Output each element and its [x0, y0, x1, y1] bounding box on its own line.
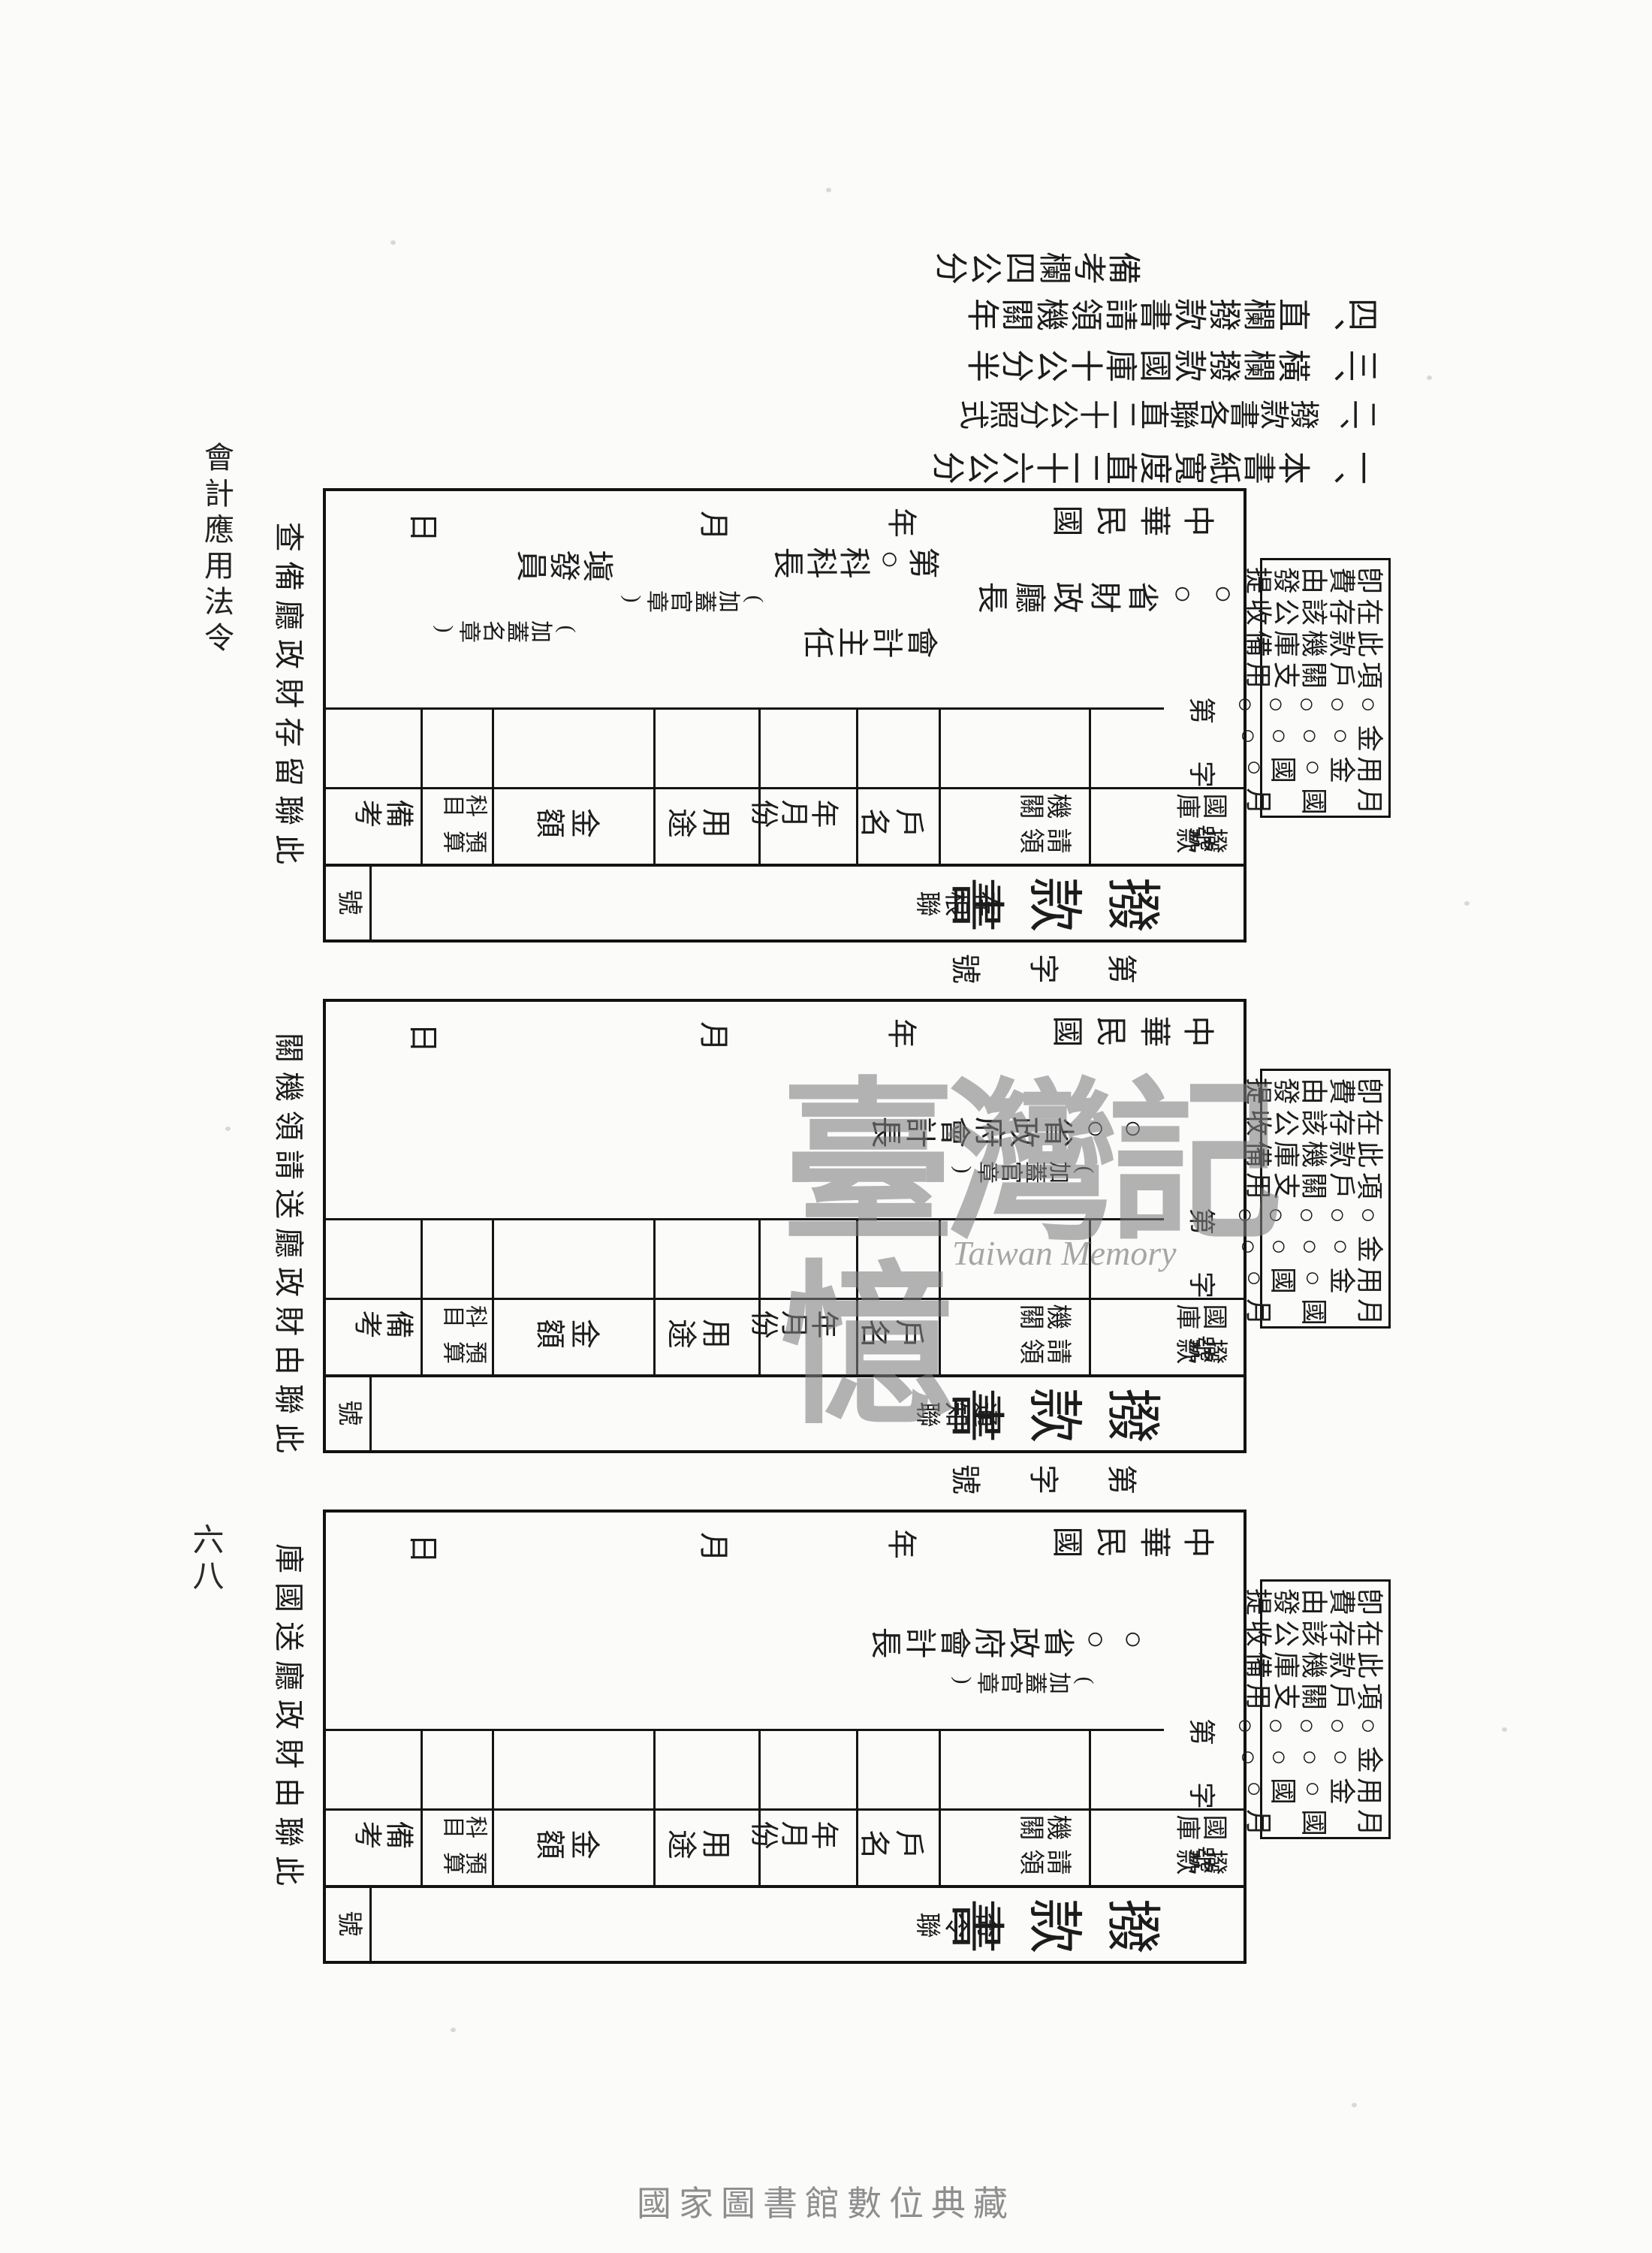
form-1-grid-col [939, 707, 941, 787]
form-1-rule-label-top [323, 787, 1247, 789]
instruction-item-4-cont: 備考欄四公分 [934, 248, 1141, 281]
form-2-label-kemu: 科目 [443, 1302, 488, 1325]
form-3-number-cell [369, 1885, 372, 1961]
form-1-signer-chief_seal: (加蓋官章) [619, 587, 767, 610]
form-1-serial-column: 第 字 號 [1188, 697, 1215, 867]
form-2-date-era: 中華民國 [1041, 1012, 1215, 1044]
form-1-date-day: 日 [409, 509, 439, 539]
form-1-note-line-5: ○○○○○ [1230, 691, 1384, 718]
form-2-date-year: 年 [888, 1015, 918, 1045]
form-1-label-cell [421, 787, 423, 864]
instruction-item-1: 一、本書紙寬度直二十六公分 [931, 448, 1380, 481]
form-1-note-line-2: 在存該公收 [1245, 596, 1384, 623]
form-3-label-nianyuefen: 年月份 [749, 1817, 840, 1846]
form-3-label-cell [1089, 1808, 1091, 1885]
form-3-grid-col [939, 1729, 941, 1808]
form-1-rule-grid-top [323, 707, 1164, 710]
form-2-rule-grid-top [323, 1218, 1164, 1220]
form-3-serial-column: 第 字 號 [1188, 1718, 1215, 1888]
form-3-grid-col [856, 1729, 858, 1808]
form-3-number-label: 號 [338, 1908, 363, 1933]
form-2-grid-col [653, 1218, 656, 1298]
form-3-note-line-1: 卽費由發提 [1245, 1586, 1384, 1613]
form-3-grid-col [1089, 1729, 1091, 1808]
form-1-note-line-7: 用金○國○ [1239, 754, 1384, 781]
form-1-grid-col [492, 707, 494, 787]
form-2-label-yusuan: 預算 [443, 1338, 488, 1361]
form-2-note-line-2: 在存該公收 [1245, 1107, 1384, 1134]
form-2-caption: 關機領請送廳政財由聯此 [273, 1033, 303, 1462]
form-2-label-cell [653, 1298, 656, 1374]
form-1-label-beikao: 備考 [351, 796, 415, 825]
form-2-label-cell [939, 1298, 941, 1374]
scan-speckle [451, 2028, 456, 2032]
form-1-rule-label-bottom [323, 864, 1247, 867]
form-1-label-yusuan: 預算 [443, 828, 488, 850]
form-2-note-line-8: 月 國 月 [1245, 1296, 1384, 1323]
form-2-note-line-6: 金○○○○ [1233, 1233, 1384, 1260]
form-3-signer-chief2_seal: (加蓋官章) [949, 1669, 1098, 1691]
form-2-date-day: 日 [409, 1020, 439, 1050]
form-3-date-month: 月 [700, 1529, 730, 1559]
form-1-signer-officer_a: 第○科科長 [772, 544, 940, 575]
form-1-signer-chief: ○○省財政廳長 [972, 578, 1241, 610]
form-3-date-era: 中華民國 [1041, 1523, 1215, 1555]
form-2-date-month: 月 [700, 1018, 730, 1048]
form-3-label-jine: 金額 [532, 1826, 601, 1856]
form-2-label-huming: 戶名 [856, 1316, 925, 1346]
form-1-note-line-4: 項戶關支用 [1245, 659, 1384, 686]
form-2-label-cell [492, 1298, 494, 1374]
form-3-grid-col [492, 1729, 494, 1808]
form-3-caption: 庫國送廳政財由聯此 [273, 1543, 303, 1895]
form-3-note-line-6: 金○○○○ [1233, 1744, 1384, 1771]
instruction-item-3: 三、橫欄撥款國庫十公分半 [966, 345, 1380, 379]
form-2-number-label: 號 [338, 1397, 363, 1422]
form-1-caption: 查備廳政財存留聯此 [273, 522, 303, 873]
form-2-number-cell [369, 1374, 372, 1450]
form-1-signer-name_seal: (加蓋名章) [431, 617, 580, 640]
form-3-label-huming: 戶名 [856, 1826, 925, 1856]
form-2-label-qingling: 請領 [1018, 1335, 1072, 1361]
form-1-number-cell [369, 864, 372, 940]
form-3-signer-chief2: ○○省政府會計長 [868, 1624, 1150, 1655]
library-footer-caption: 國家圖書館數位典藏 [0, 2176, 1652, 2226]
form-2-signer-chief2_seal: (加蓋官章) [949, 1158, 1098, 1181]
form-2-label-yongtu: 用途 [663, 1316, 732, 1346]
scan-speckle [390, 240, 396, 245]
form-1-grid-col [421, 707, 423, 787]
form-2-rule-label-top [323, 1298, 1247, 1300]
margin-book-title: 會計應用法令 [201, 442, 231, 658]
form-2-note-line-3: 此款機庫備 [1245, 1139, 1384, 1166]
form-3-note-line-4: 項戶關支用 [1245, 1681, 1384, 1708]
form-1-label-yongtu: 用途 [663, 805, 732, 835]
form-1-label-cell [492, 787, 494, 864]
page-number: 六八 [189, 1523, 221, 1595]
form-3-label-qingling: 請領 [1018, 1846, 1072, 1871]
form-2-label-cell [1089, 1298, 1091, 1374]
form-3-note-line-2: 在存該公收 [1245, 1618, 1384, 1645]
form-3-label-jiguan: 機關 [1018, 1811, 1072, 1837]
form-1-label-nianyuefen: 年月份 [749, 796, 840, 825]
form-2-grid-col [421, 1218, 423, 1298]
form-2-note-line-4: 項戶關支用 [1245, 1170, 1384, 1197]
instruction-item-4: 四、直欄撥款書請領機關年 [966, 294, 1380, 327]
form-3-date-year: 年 [888, 1526, 918, 1556]
form-3-note-line-8: 月 國 月 [1245, 1807, 1384, 1834]
form-1-date-year: 年 [888, 505, 918, 535]
form-1-note-line-3: 此款機庫備 [1245, 628, 1384, 655]
form-2-label-cell [421, 1298, 423, 1374]
scan-speckle [1427, 375, 1432, 380]
form-1-grid-col [758, 707, 761, 787]
form-1-label-huming: 戶名 [856, 805, 925, 835]
form-1-label-jine: 金額 [532, 805, 601, 835]
form-1-note-line-6: 金○○○○ [1233, 722, 1384, 749]
form-2-grid-col [758, 1218, 761, 1298]
form-2-label-beikao: 備考 [351, 1307, 415, 1335]
scan-speckle [826, 188, 831, 192]
form-3-label-yongtu: 用途 [663, 1826, 732, 1856]
form-2-serial-column: 第 字 號 [1188, 1208, 1215, 1377]
form-2-label-jiguan: 機關 [1018, 1301, 1072, 1326]
form-1-grid-col [653, 707, 656, 787]
form-2-copy-label: 通知聯 [913, 1398, 999, 1424]
instruction-item-2: 二、撥款書各聯直二十公分照式 [960, 397, 1380, 427]
form-2-grid-col [856, 1218, 858, 1298]
form-3-rule-label-bottom [323, 1885, 1247, 1888]
form-1-label-cell [653, 787, 656, 864]
scan-speckle [1502, 1727, 1507, 1732]
form-1-label-cell [939, 787, 941, 864]
form-3-rule-grid-top [323, 1729, 1164, 1731]
form-2-note-line-7: 用金○國○ [1239, 1265, 1384, 1292]
form-3-label-beikao: 備考 [351, 1817, 415, 1846]
taiwan-memory-watermark-en: Taiwan Memory [952, 1233, 1177, 1273]
form-3-rule-label-top [323, 1808, 1247, 1811]
form-1-signer-officer_b: 塡發員 [515, 547, 614, 578]
form-1-label-kemu: 科目 [443, 792, 488, 814]
form-3-label-cell [939, 1808, 941, 1885]
form-1-signer-accountant: 會計主任 [800, 623, 939, 655]
form-1-date-month: 月 [700, 508, 730, 538]
form-3-grid-col [758, 1729, 761, 1808]
form-1-grid-col [856, 707, 858, 787]
form-1-number-label: 號 [338, 886, 363, 912]
serial-between-form1-form2: 第 字 號 [942, 951, 1138, 981]
form-2-grid-col [939, 1218, 941, 1298]
form-1-label-qingling: 請領 [1018, 825, 1072, 850]
form-3-note-line-7: 用金○國○ [1239, 1775, 1384, 1802]
form-3-label-kemu: 科目 [443, 1813, 488, 1835]
form-2-rule-label-bottom [323, 1374, 1247, 1377]
scanned-document-page: 會計應用法令 六八 臺灣記憶 Taiwan Memory 國家圖書館數位典藏 備… [0, 0, 1652, 2253]
form-1-note-line-8: 月 國 月 [1245, 786, 1384, 813]
scan-speckle [225, 1126, 231, 1131]
form-1-copy-label: 存根聯 [913, 888, 999, 913]
form-3-note-line-5: ○○○○○ [1230, 1712, 1384, 1739]
form-3-label-yusuan: 預算 [443, 1849, 488, 1871]
form-3-label-cell [653, 1808, 656, 1885]
form-2-label-nianyuefen: 年月份 [749, 1307, 840, 1335]
form-2-grid-col [492, 1218, 494, 1298]
form-3-copy-label: 命令聯 [913, 1909, 999, 1935]
form-3-grid-col [653, 1729, 656, 1808]
scan-speckle [1352, 2103, 1357, 2107]
form-3-label-cell [492, 1808, 494, 1885]
scan-speckle [1464, 901, 1470, 906]
form-1-date-era: 中華民國 [1041, 502, 1215, 533]
form-2-note-line-5: ○○○○○ [1230, 1202, 1384, 1229]
form-3-label-cell [421, 1808, 423, 1885]
form-2-signer-chief2: ○○省政府會計長 [868, 1113, 1150, 1145]
form-1-note-line-1: 卽費由發提 [1245, 565, 1384, 592]
form-1-label-jiguan: 機關 [1018, 790, 1072, 816]
form-1-label-cell [1089, 787, 1091, 864]
serial-between-form2-form3: 第 字 號 [942, 1461, 1138, 1491]
form-1-grid-col [1089, 707, 1091, 787]
form-2-label-jine: 金額 [532, 1316, 601, 1346]
form-3-grid-col [421, 1729, 423, 1808]
form-3-note-line-3: 此款機庫備 [1245, 1649, 1384, 1676]
form-3-date-day: 日 [409, 1531, 439, 1561]
form-2-note-line-1: 卽費由發提 [1245, 1075, 1384, 1102]
